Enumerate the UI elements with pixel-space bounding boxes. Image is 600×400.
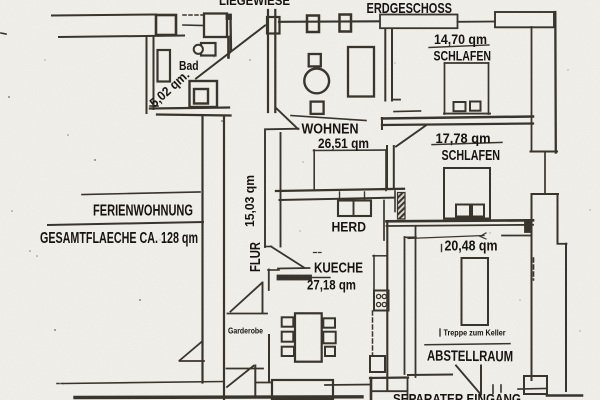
svg-text:FLUR: FLUR [248, 242, 264, 272]
svg-text:Garderobe: Garderobe [228, 327, 263, 336]
svg-text:SCHLAFEN: SCHLAFEN [434, 48, 492, 64]
svg-text:Treppe zum Keller: Treppe zum Keller [444, 328, 507, 338]
svg-text:GESAMTFLAECHE CA. 128 qm: GESAMTFLAECHE CA. 128 qm [40, 230, 198, 247]
svg-text:14,70 qm: 14,70 qm [434, 31, 487, 47]
svg-text:ABSTELLRAUM: ABSTELLRAUM [427, 348, 513, 366]
svg-text:SEPARATER EINGANG: SEPARATER EINGANG [393, 391, 521, 400]
svg-text:15,03 qm: 15,03 qm [242, 175, 257, 227]
svg-text:17,78 qm: 17,78 qm [436, 130, 491, 146]
svg-text:LIEGEWIESE: LIEGEWIESE [219, 0, 290, 8]
svg-text:27,18 qm: 27,18 qm [307, 277, 356, 293]
svg-text:26,51 qm: 26,51 qm [318, 135, 369, 151]
svg-text:20,48 qm: 20,48 qm [445, 239, 498, 255]
svg-text:HERD: HERD [332, 220, 367, 235]
svg-text:FERIENWOHNUNG: FERIENWOHNUNG [93, 203, 193, 220]
svg-text:KUECHE: KUECHE [314, 261, 363, 277]
svg-text:SCHLAFEN: SCHLAFEN [442, 148, 501, 164]
svg-text:ERDGESCHOSS: ERDGESCHOSS [367, 0, 453, 17]
